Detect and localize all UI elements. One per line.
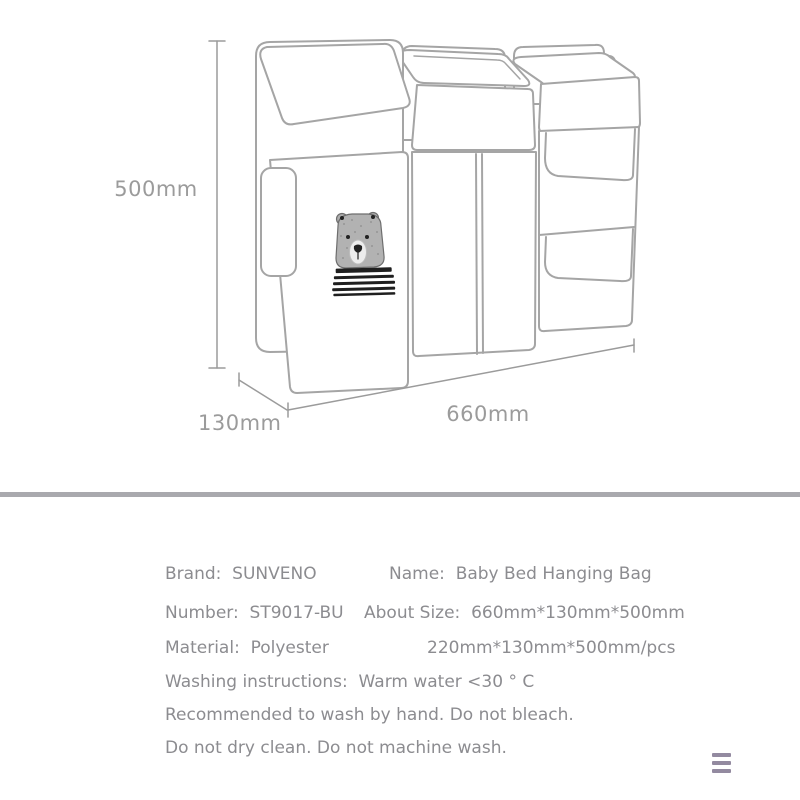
middle-lid-front [412,85,535,150]
middle-front-panel [412,152,536,356]
spec-row-material-size2: Material: Polyester 220mm*130mm*500mm/pc… [0,636,800,660]
bear-ear-dot-right [371,215,375,219]
spec-row-care-2: Do not dry clean. Do not machine wash. [0,736,800,760]
dimension-depth-label: 130mm [198,411,278,435]
dimension-width-label: 660mm [443,402,533,426]
spec-care-line-1: Recommended to wash by hand. Do not blea… [165,703,574,727]
spec-row-number-size: Number: ST9017-BU About Size: 660mm*130m… [0,601,800,625]
spec-material: Material: Polyester [165,636,329,660]
right-body [539,127,639,331]
product-line-drawing [0,0,800,470]
middle-divider-line-1 [476,154,477,354]
menu-icon-bar [712,761,731,765]
menu-icon[interactable] [712,753,731,773]
left-side-pocket [261,168,296,276]
spec-brand: Brand: SUNVENO [165,562,317,586]
spec-number: Number: ST9017-BU [165,601,344,625]
depth-dimension-line [239,380,287,410]
product-spec-sheet: 500mm 130mm 660mm Brand: SUNVENO Name: B… [0,0,800,800]
spec-name: Name: Baby Bed Hanging Bag [389,562,652,586]
middle-divider-line-2 [482,154,483,353]
dimension-height-label: 500mm [112,177,200,201]
right-lid-front [539,77,640,133]
bear-ear-dot-left [340,216,344,220]
section-divider [0,492,800,497]
spec-row-brand-name: Brand: SUNVENO Name: Baby Bed Hanging Ba… [0,562,800,586]
spec-size-per-piece: 220mm*130mm*500mm/pcs [427,636,675,660]
bear-eye-left [346,235,350,239]
spec-care-line-2: Do not dry clean. Do not machine wash. [165,736,507,760]
menu-icon-bar [712,769,731,773]
spec-about-size: About Size: 660mm*130mm*500mm [364,601,685,625]
bear-eye-right [365,235,369,239]
spec-washing-instructions: Washing instructions: Warm water <30 ° C [165,670,534,694]
spec-row-care-1: Recommended to wash by hand. Do not blea… [0,703,800,727]
menu-icon-bar [712,753,731,757]
spec-row-washing: Washing instructions: Warm water <30 ° C [0,670,800,694]
